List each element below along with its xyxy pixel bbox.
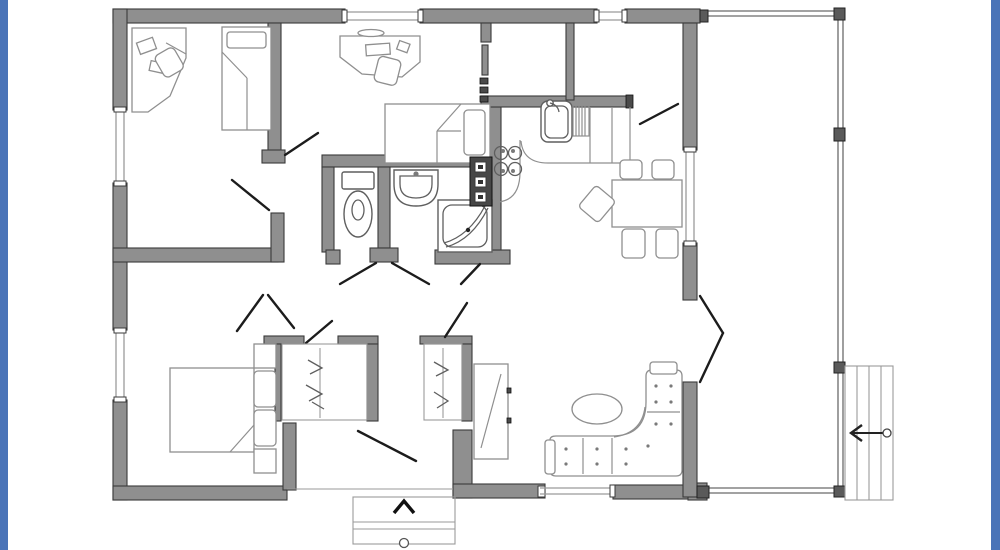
- double-bed-icon: [170, 344, 276, 473]
- kitchen-sink-icon: [541, 100, 572, 142]
- coffee-table-icon: [572, 394, 622, 424]
- nightstand-icon: [254, 449, 276, 473]
- washbasin-icon: [394, 170, 438, 206]
- appliance-column-icon: [470, 157, 492, 206]
- single-bed-icon: [222, 27, 271, 130]
- window-left-1: [114, 107, 126, 186]
- entry-porch: [287, 489, 455, 548]
- window-left-2: [114, 328, 126, 402]
- window-top-2: [594, 10, 627, 22]
- closet-icon: [282, 344, 367, 420]
- room-dining: [578, 160, 682, 258]
- dining-table-icon: [612, 180, 682, 227]
- corner-shower-icon: [438, 200, 492, 252]
- floor-plan-drawing: [0, 0, 1000, 550]
- direction-arrow-up-icon: [394, 501, 414, 513]
- room-shower: [438, 200, 492, 252]
- room-washroom: [394, 170, 438, 206]
- pillow-icon: [254, 410, 276, 446]
- deck-post: [834, 486, 845, 497]
- closet-icon: [424, 344, 462, 420]
- direction-arrow-left-icon: [851, 425, 891, 441]
- dining-chair-icon: [656, 229, 678, 258]
- deck: [697, 8, 893, 500]
- deck-post: [834, 362, 845, 373]
- window-top-1: [342, 10, 423, 22]
- dining-chair-icon: [578, 185, 616, 223]
- toilet-icon: [342, 172, 374, 237]
- deck-steps-icon: [845, 366, 893, 500]
- tall-cabinet-icon: [474, 364, 511, 459]
- room-bedroom-top-left: [132, 27, 271, 130]
- dining-chair-icon: [622, 229, 645, 258]
- room-bedroom-top-middle: [340, 30, 490, 164]
- window-bottom: [540, 485, 615, 497]
- room-master-bedroom: [170, 344, 276, 473]
- hallway-closets: [282, 344, 511, 459]
- deck-post: [834, 128, 845, 141]
- dining-chair-icon: [620, 160, 642, 179]
- deck-post: [834, 8, 845, 20]
- window-right: [684, 147, 696, 246]
- room-living: [545, 362, 682, 476]
- entry-marker-circle: [400, 539, 409, 548]
- dining-chair-icon: [652, 160, 674, 179]
- single-bed-icon: [385, 104, 490, 163]
- nightstand-icon: [254, 344, 276, 368]
- door-hinge-ticks: [480, 78, 488, 102]
- room-wc: [342, 172, 374, 237]
- deck-post: [697, 486, 709, 498]
- interior-walls: [113, 23, 633, 421]
- dish-rack-icon: [573, 106, 589, 136]
- deck-post: [700, 10, 708, 22]
- pillow-icon: [254, 371, 276, 407]
- floor-plan-page: [0, 0, 1000, 550]
